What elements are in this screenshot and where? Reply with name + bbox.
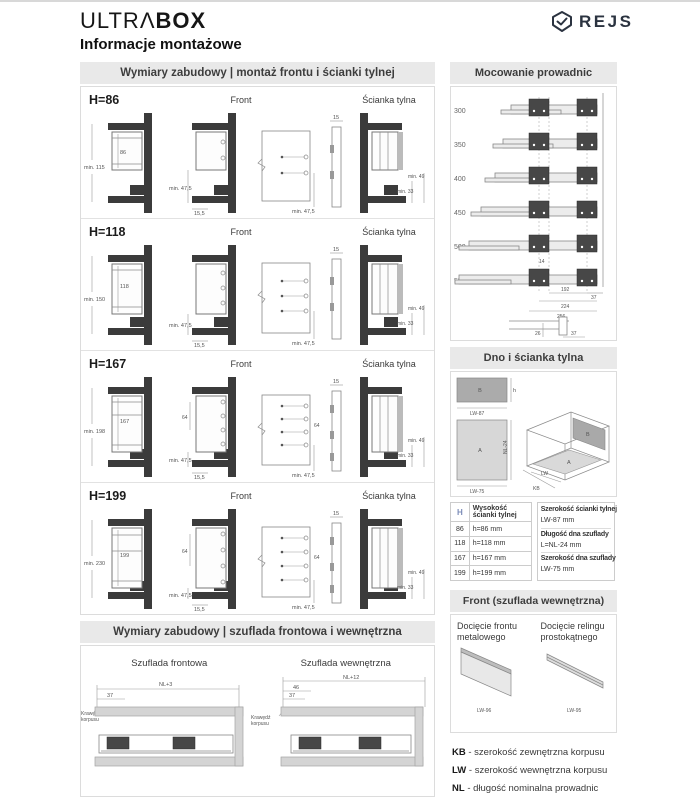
drawer-titles: Szuflada frontowa Szuflada wewnętrzna	[81, 658, 434, 669]
h-label: H=86	[89, 93, 119, 107]
svg-text:NL+12: NL+12	[343, 675, 359, 681]
diagram-h86: min. 115 86 min. 47,5 15,5 min. 47,5 15	[84, 111, 431, 217]
front-panel-view: min. 47,5	[258, 263, 315, 347]
svg-text:korpusu: korpusu	[81, 717, 99, 723]
svg-text:LW-87: LW-87	[470, 411, 484, 417]
front-label: Front	[191, 95, 291, 105]
drawers-diagram: NL+3 37 Krawędź korpusu NL+12 46 37 Kraw…	[81, 671, 432, 789]
rail-350: 350	[454, 133, 597, 150]
legend-kb: KB - szerokość zewnętrzna korpusu	[452, 744, 667, 762]
svg-text:korpusu: korpusu	[251, 721, 269, 727]
table-row: 199h=199 mm	[451, 566, 532, 581]
svg-text:37: 37	[591, 295, 597, 301]
front-panel-view: 64 min. 47,5	[258, 395, 320, 479]
svg-text:118: 118	[120, 284, 129, 290]
rails-diagram: 300 350 400 450 500	[451, 87, 616, 340]
svg-text:46: 46	[293, 685, 299, 691]
svg-text:LW-96: LW-96	[477, 708, 491, 714]
svg-text:min. 47,5: min. 47,5	[169, 458, 192, 464]
h-label: H=118	[89, 225, 126, 239]
front-mount-view: min. 47,5 15,5	[169, 245, 236, 349]
svg-text:min. 230: min. 230	[84, 561, 105, 567]
svg-text:min. 49: min. 49	[408, 306, 425, 312]
svg-text:15,5: 15,5	[194, 607, 205, 613]
svg-text:15,5: 15,5	[194, 343, 205, 349]
rail-dimensions: 192 37 224 256	[529, 287, 603, 320]
svg-text:15: 15	[333, 379, 339, 385]
svg-text:37: 37	[107, 693, 113, 699]
front-panel-view: 64 min. 47,5	[258, 527, 320, 611]
side-view: min. 230 199	[84, 509, 152, 609]
h-label: H=199	[89, 489, 126, 503]
legend: KB - szerokość zewnętrzna korpusu LW - s…	[452, 744, 667, 798]
side-view: min. 198 167	[84, 377, 152, 477]
svg-text:min. 47,5: min. 47,5	[169, 323, 192, 329]
svg-text:min. 49: min. 49	[408, 174, 425, 180]
row-h199: H=199 Front Ścianka tylna min. 230 199 6…	[81, 483, 434, 615]
panel-drawers: Szuflada frontowa Szuflada wewnętrzna NL…	[80, 645, 435, 797]
back-strip-view: 15	[330, 115, 343, 207]
section-header-dno: Dno i ścianka tylna	[450, 347, 617, 369]
section-header-mocowanie: Mocowanie prowadnic	[450, 62, 617, 84]
svg-text:15: 15	[333, 247, 339, 253]
svg-text:350: 350	[454, 142, 466, 149]
svg-text:300: 300	[454, 108, 466, 115]
svg-text:A: A	[478, 448, 482, 454]
legend-lw: LW - szerokość wewnętrzna korpusu	[452, 762, 667, 780]
rejs-shield-icon	[550, 10, 574, 34]
diagram-h167: min. 198 167 64 min. 47,5 15,5 64 min. 4…	[84, 375, 431, 481]
inner-drawer-view: NL+12 46 37 Krawędź korpusu	[251, 675, 425, 766]
svg-text:min. 47,5: min. 47,5	[292, 341, 315, 347]
inner-drawer-title: Szuflada wewnętrzna	[258, 658, 435, 669]
dimensions-info-box: Szerokość ścianki tylnej LW-87 mm Długoś…	[537, 502, 615, 581]
cut-titles: Docięcie frontu metalowego Docięcie reli…	[451, 615, 616, 644]
svg-text:64: 64	[314, 555, 320, 561]
table-row: 86h=86 mm	[451, 522, 532, 537]
svg-text:15: 15	[333, 115, 339, 121]
panel-h-rows: H=86 Front Ścianka tylna min. 115 86 min…	[80, 86, 435, 615]
svg-text:min. 47,5: min. 47,5	[292, 209, 315, 215]
page-title: Informacje montażowe	[80, 36, 242, 53]
svg-text:37: 37	[571, 331, 577, 337]
svg-text:B: B	[478, 388, 482, 394]
front-mount-view: 64 min. 47,5 15,5	[169, 377, 236, 481]
table-row: 118h=118 mm	[451, 536, 532, 551]
svg-text:min. 33: min. 33	[397, 585, 414, 591]
panel-rails: 300 350 400 450 500	[450, 86, 617, 341]
rejs-wordmark: REJS	[579, 12, 633, 32]
diagram-h199: min. 230 199 64 min. 47,5 15,5 64 min. 4…	[84, 507, 431, 613]
back-view: min. 33 min. 49	[360, 113, 425, 213]
svg-text:15: 15	[333, 511, 339, 517]
back-strip-view: 15	[330, 511, 343, 603]
svg-text:min. 33: min. 33	[397, 453, 414, 459]
svg-text:KB: KB	[533, 486, 540, 492]
svg-text:450: 450	[454, 210, 466, 217]
front-label: Front	[191, 227, 291, 237]
svg-text:min. 150: min. 150	[84, 297, 105, 303]
svg-text:37: 37	[289, 693, 295, 699]
section-header-wymiary-szuflada: Wymiary zabudowy | szuflada frontowa i w…	[80, 621, 435, 643]
svg-text:192: 192	[561, 287, 570, 293]
bottom-panel-flat: A NL-24 LW-75	[457, 420, 511, 495]
svg-text:26: 26	[535, 331, 541, 337]
svg-text:min. 33: min. 33	[397, 321, 414, 327]
legend-nl: NL - długość nominalna prowadnic	[452, 780, 667, 798]
side-view: min. 115 86	[84, 113, 152, 213]
corner-detail: 26 37	[509, 317, 585, 337]
front-drawer-view: NL+3 37 Krawędź korpusu	[81, 682, 243, 766]
brand-box: BOX	[156, 8, 207, 33]
svg-text:167: 167	[120, 419, 129, 425]
dno-tables: H Wysokość ścianki tylnej 86h=86 mm 118h…	[450, 502, 617, 581]
rail-500: 500	[454, 235, 597, 252]
svg-text:199: 199	[120, 553, 129, 559]
svg-text:B: B	[586, 432, 590, 438]
rejs-logo: REJS	[550, 10, 633, 34]
rectangular-railing: LW-95	[547, 654, 603, 714]
svg-text:LW: LW	[541, 471, 548, 477]
svg-text:15,5: 15,5	[194, 475, 205, 481]
brand-ultra: ULTRΛ	[80, 8, 156, 33]
cut-reling-title: Docięcie relingu prostokątnego	[541, 621, 613, 644]
svg-text:A: A	[567, 460, 571, 466]
row-h86: H=86 Front Ścianka tylna min. 115 86 min…	[81, 87, 434, 219]
section-header-wymiary-front: Wymiary zabudowy | montaż frontu i ścian…	[80, 62, 435, 84]
svg-text:64: 64	[182, 549, 188, 555]
svg-text:NL+3: NL+3	[159, 682, 172, 688]
back-label: Ścianka tylna	[339, 227, 439, 237]
row-h167: H=167 Front Ścianka tylna min. 198 167 6…	[81, 351, 434, 483]
ultrabox-logo: ULTRΛBOX	[80, 8, 206, 34]
back-view: min. 33 min. 49	[360, 245, 425, 345]
page: { "page": { "brand1": "ULTRΛ", "brand2":…	[0, 0, 700, 800]
svg-text:14: 14	[539, 259, 545, 265]
svg-text:224: 224	[561, 304, 570, 310]
section-header-front-wewnetrzna: Front (szuflada wewnętrzna)	[450, 590, 617, 612]
h-label: H=167	[89, 357, 126, 371]
svg-text:LW-75: LW-75	[470, 489, 484, 495]
metal-front-panel: LW-96	[461, 648, 511, 714]
svg-text:64: 64	[314, 423, 320, 429]
back-label: Ścianka tylna	[339, 491, 439, 501]
dno-diagram: B h LW-87 A NL-24 LW-75 A B LW KB	[451, 372, 616, 496]
panel-front-cut: Docięcie frontu metalowego Docięcie reli…	[450, 614, 617, 733]
back-strip-view: 15	[330, 247, 343, 339]
iso-box: A B LW KB	[523, 412, 609, 492]
svg-text:LW-95: LW-95	[567, 708, 581, 714]
rail-450: 450	[454, 201, 597, 218]
back-view: min. 33 min. 49	[360, 377, 425, 477]
side-view: min. 150 118	[84, 245, 152, 345]
front-cut-diagram: LW-96 LW-95	[451, 644, 616, 716]
rail-400: 400	[454, 167, 597, 184]
svg-text:min. 198: min. 198	[84, 429, 105, 435]
front-mount-view: min. 47,5 15,5	[169, 113, 236, 217]
back-panel-flat: B h LW-87	[457, 378, 516, 417]
svg-text:64: 64	[182, 415, 188, 421]
row-h118: H=118 Front Ścianka tylna min. 150 118 m…	[81, 219, 434, 351]
cut-front-title: Docięcie frontu metalowego	[457, 621, 529, 644]
svg-text:h: h	[513, 388, 516, 394]
svg-text:min. 47,5: min. 47,5	[169, 593, 192, 599]
svg-text:400: 400	[454, 176, 466, 183]
diagram-h118: min. 150 118 min. 47,5 15,5 min. 47,5 15	[84, 243, 431, 349]
svg-text:min. 49: min. 49	[408, 438, 425, 444]
front-label: Front	[191, 359, 291, 369]
svg-text:86: 86	[120, 150, 126, 156]
front-panel-view: min. 47,5	[258, 131, 315, 215]
back-label: Ścianka tylna	[339, 359, 439, 369]
svg-text:min. 115: min. 115	[84, 165, 105, 171]
svg-text:NL-24: NL-24	[503, 440, 509, 454]
front-drawer-title: Szuflada frontowa	[81, 658, 258, 669]
svg-text:15,5: 15,5	[194, 211, 205, 217]
svg-text:min. 47,5: min. 47,5	[292, 473, 315, 479]
svg-text:min. 49: min. 49	[408, 570, 425, 576]
back-label: Ścianka tylna	[339, 95, 439, 105]
height-table: H Wysokość ścianki tylnej 86h=86 mm 118h…	[450, 502, 532, 581]
table-row: 167h=167 mm	[451, 551, 532, 566]
back-strip-view: 15	[330, 379, 343, 471]
panel-dno: B h LW-87 A NL-24 LW-75 A B LW KB	[450, 371, 617, 497]
col-title: Wysokość ścianki tylnej	[469, 503, 531, 522]
rail-550: 550 14	[454, 259, 597, 286]
svg-text:min. 33: min. 33	[397, 189, 414, 195]
svg-text:min. 47,5: min. 47,5	[292, 605, 315, 611]
col-h: H	[451, 503, 470, 522]
front-label: Front	[191, 491, 291, 501]
svg-text:min. 47,5: min. 47,5	[169, 186, 192, 192]
front-mount-view: 64 min. 47,5 15,5	[169, 509, 236, 613]
back-view: min. 33 min. 49	[360, 509, 425, 609]
rail-300: 300	[454, 99, 597, 116]
